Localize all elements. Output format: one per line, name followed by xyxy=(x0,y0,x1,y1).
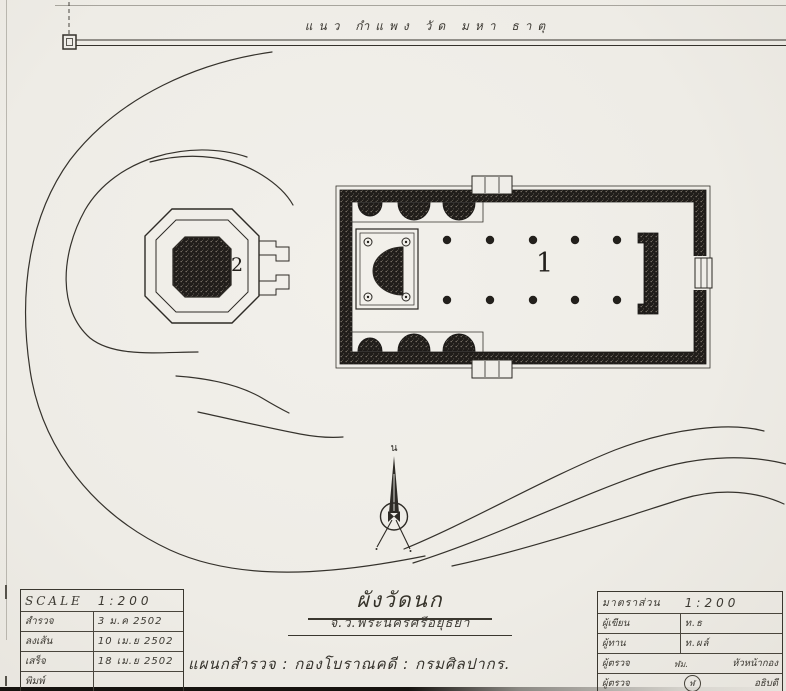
table-row: ผู้ตรวจ ฬม. หัวหน้ากอง xyxy=(598,653,782,673)
table-row: มาตราส่วน 1:200 xyxy=(598,592,782,613)
table-row: ผู้เขียน ท.ธ xyxy=(598,613,782,633)
row-label: เสร็จ xyxy=(21,652,94,671)
row-label: ผู้ทาน xyxy=(598,634,681,653)
row-value: อธิบดี xyxy=(754,676,778,691)
row-value: ท.ผล์ xyxy=(681,636,782,651)
table-row: ลงเส้น 10 เม.ย 2502 xyxy=(21,631,183,651)
east-entrance-steps xyxy=(695,258,712,288)
signature-mark: ฬม. xyxy=(674,657,688,671)
approval-table: มาตราส่วน 1:200 ผู้เขียน ท.ธ ผู้ทาน ท.ผล… xyxy=(597,591,783,691)
table-row: สำรวจ 3 ม.ค 2502 xyxy=(21,611,183,631)
row-value: 18 เม.ย 2502 xyxy=(94,654,183,669)
south-porch-steps xyxy=(472,360,512,378)
drawing-subtitle: จ.ว.พระนครศรีอยุธยา xyxy=(288,612,512,636)
department-line: แผนกสำรวจ : กองโบราณคดี : กรมศิลปากร. xyxy=(188,652,568,676)
hall-columns xyxy=(443,236,621,304)
table-row: ผู้ทาน ท.ผล์ xyxy=(598,633,782,653)
table-row: SCALE 1:200 xyxy=(21,590,183,611)
building-2-number: 2 xyxy=(231,254,243,276)
ratio-value: 1:200 xyxy=(681,596,782,610)
scale-date-table: SCALE 1:200 สำรวจ 3 ม.ค 2502 ลงเส้น 10 เ… xyxy=(20,589,184,691)
row-label: ผู้ตรวจ xyxy=(602,656,630,671)
table-row: เสร็จ 18 เม.ย 2502 xyxy=(21,651,183,671)
buddha-platform xyxy=(356,229,418,309)
terrain-contour-lines xyxy=(26,52,786,572)
survey-drawing-sheet: แนว กำแพง วัด มหา ธาตุ 1 2 น ผังวัดนก จ.… xyxy=(0,0,786,691)
row-value: หัวหน้ากอง xyxy=(732,656,778,671)
east-stair-arm-south xyxy=(259,275,289,295)
scale-value: 1:200 xyxy=(94,594,183,608)
row-value: 10 เม.ย 2502 xyxy=(94,634,183,649)
row-label: ลงเส้น xyxy=(21,632,94,651)
north-compass-icon xyxy=(376,456,412,552)
north-porch-steps xyxy=(472,176,512,194)
ruined-base-lobes-north xyxy=(358,203,475,220)
east-altar-base xyxy=(638,233,658,314)
row-label: พิมพ์ xyxy=(21,672,94,691)
boundary-wall-label: แนว กำแพง วัด มหา ธาตุ xyxy=(288,17,568,36)
ratio-label: มาตราส่วน xyxy=(598,592,681,613)
table-row: พิมพ์ xyxy=(21,671,183,691)
row-label: ผู้ตรวจ xyxy=(602,676,630,691)
table-row: ผู้ตรวจ ฬ อธิบดี xyxy=(598,673,782,691)
row-label: สำรวจ xyxy=(21,612,94,631)
row-value: ท.ธ xyxy=(681,616,782,631)
building-2-chedi-plan xyxy=(145,209,289,323)
north-letter: น xyxy=(381,441,407,456)
building-1-vihara-plan xyxy=(336,176,712,378)
row-label: ผู้เขียน xyxy=(598,614,681,633)
scale-label: SCALE xyxy=(21,590,94,611)
circled-signature-mark: ฬ xyxy=(684,675,701,691)
east-stair-arm-north xyxy=(259,241,289,261)
building-1-number: 1 xyxy=(536,248,553,279)
row-value: 3 ม.ค 2502 xyxy=(94,614,183,629)
chedi-core xyxy=(173,237,231,297)
ruined-base-lobes-south xyxy=(358,334,475,351)
